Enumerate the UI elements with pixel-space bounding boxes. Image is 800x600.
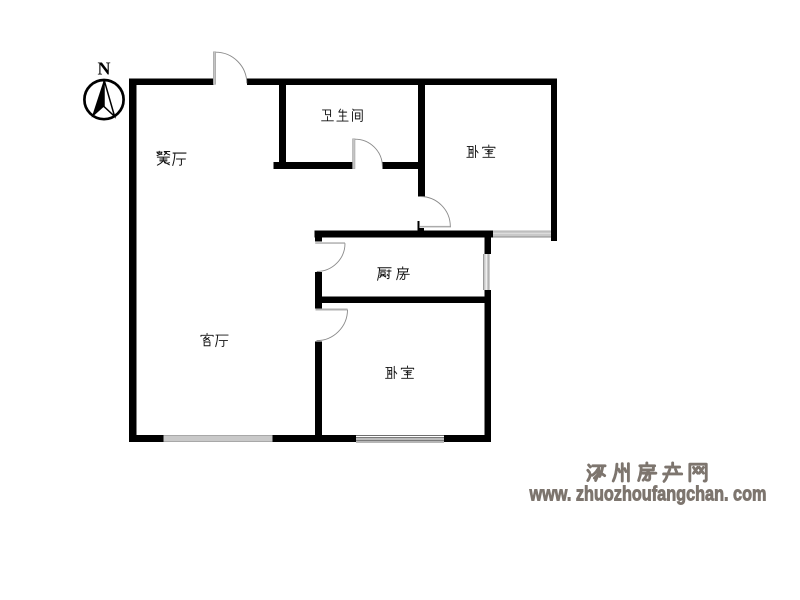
- svg-text:N: N: [98, 59, 111, 79]
- svg-text:www. zhuozhoufangchan. com: www. zhuozhoufangchan. com: [529, 484, 767, 506]
